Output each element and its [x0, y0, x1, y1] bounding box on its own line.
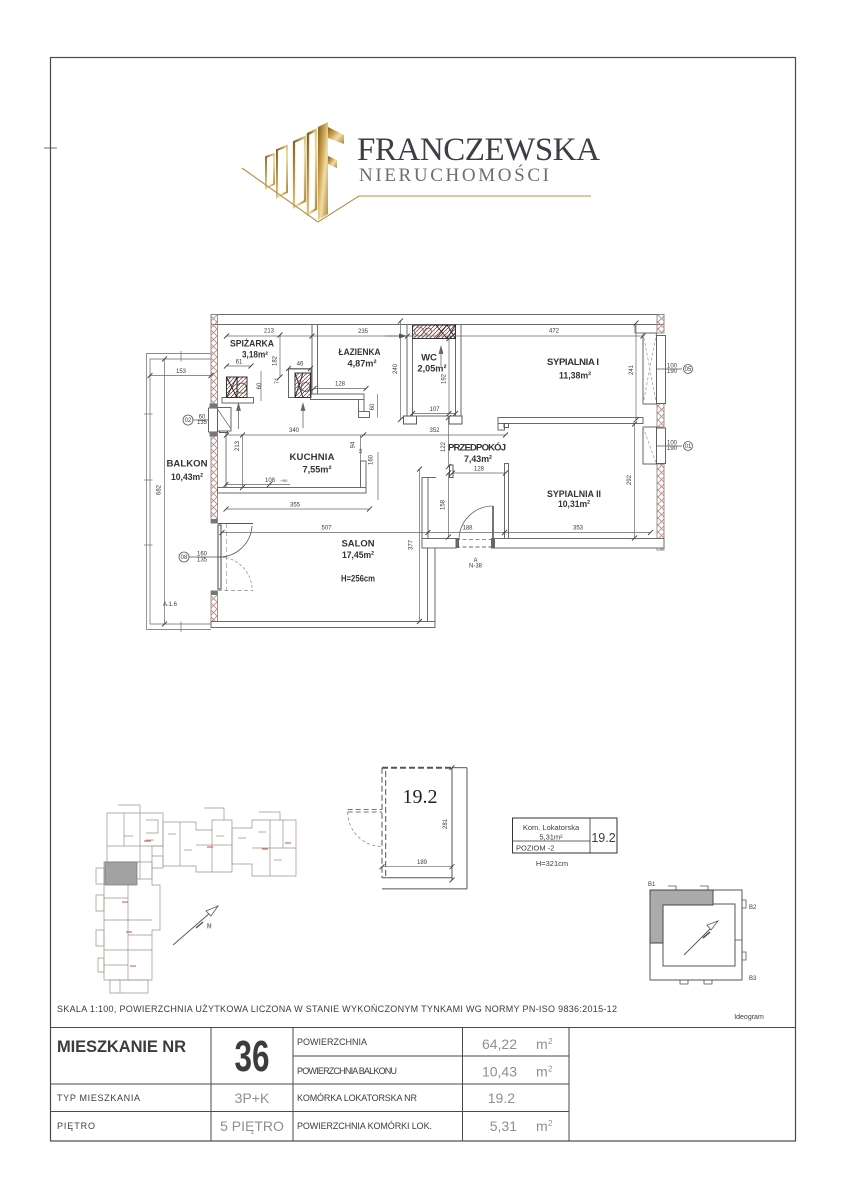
svg-text:NIERUCHOMOŚCI: NIERUCHOMOŚCI [359, 164, 549, 186]
svg-text:2: 2 [548, 1119, 553, 1128]
svg-text:281: 281 [443, 818, 449, 829]
svg-text:POZIOM -2: POZIOM -2 [516, 844, 554, 853]
svg-text:POWIERZCHNIA BALKONU: POWIERZCHNIA BALKONU [297, 1066, 397, 1076]
svg-text:10,43m²: 10,43m² [171, 472, 203, 483]
svg-text:m: m [536, 1064, 548, 1080]
svg-text:A.1.6: A.1.6 [163, 602, 178, 608]
svg-text:SALON: SALON [342, 539, 375, 550]
svg-text:PIĘTRO: PIĘTRO [57, 1121, 95, 1131]
svg-text:107: 107 [429, 407, 440, 413]
svg-text:5,31: 5,31 [490, 1118, 517, 1134]
svg-text:135: 135 [197, 420, 208, 426]
svg-text:122: 122 [441, 441, 447, 452]
svg-text:213: 213 [264, 329, 275, 335]
svg-text:160: 160 [369, 454, 375, 465]
svg-text:353: 353 [573, 526, 584, 532]
svg-text:182: 182 [273, 355, 279, 366]
svg-text:292: 292 [627, 474, 633, 485]
svg-text:ŁAZIENKA: ŁAZIENKA [339, 347, 381, 358]
svg-text:4,87m²: 4,87m² [348, 359, 377, 370]
svg-text:m: m [536, 1036, 548, 1052]
svg-text:377: 377 [409, 539, 415, 550]
svg-text:2: 2 [548, 1065, 553, 1074]
svg-text:153: 153 [176, 369, 187, 375]
svg-text:2: 2 [548, 1037, 553, 1046]
svg-text:B1: B1 [648, 882, 656, 888]
svg-text:507: 507 [321, 526, 332, 532]
svg-text:N-38: N-38 [469, 564, 483, 570]
svg-text:⌐50: ⌐50 [281, 478, 289, 483]
svg-text:11,38m²: 11,38m² [559, 371, 591, 382]
svg-text:19.2: 19.2 [591, 831, 615, 845]
svg-text:128: 128 [474, 467, 485, 473]
svg-text:135: 135 [197, 558, 208, 564]
svg-text:188: 188 [462, 526, 473, 532]
svg-text:KUCHNIA: KUCHNIA [290, 452, 335, 463]
svg-text:H=256cm: H=256cm [341, 574, 375, 584]
svg-text:5,31m²: 5,31m² [539, 833, 563, 842]
svg-text:46: 46 [297, 362, 304, 368]
svg-text:Kom. Lokatorska: Kom. Lokatorska [523, 823, 580, 832]
svg-text:472: 472 [549, 329, 560, 335]
svg-text:m: m [536, 1118, 548, 1134]
svg-text:36: 36 [235, 1032, 270, 1081]
svg-text:POWIERZCHNIA: POWIERZCHNIA [297, 1037, 367, 1047]
svg-text:241: 241 [629, 364, 635, 375]
svg-text:108: 108 [265, 478, 276, 484]
svg-text:BALKON: BALKON [167, 459, 208, 470]
svg-text:94: 94 [351, 441, 357, 448]
svg-text:235: 235 [358, 329, 369, 335]
svg-text:N: N [207, 924, 211, 930]
svg-text:H=321cm: H=321cm [536, 859, 568, 868]
svg-text:Ideogram: Ideogram [734, 1014, 764, 1021]
svg-text:128: 128 [335, 382, 346, 388]
svg-text:213: 213 [235, 440, 241, 451]
svg-text:5 PIĘTRO: 5 PIĘTRO [220, 1118, 284, 1134]
svg-text:192: 192 [442, 373, 448, 384]
svg-text:7,55m²: 7,55m² [303, 465, 332, 476]
svg-text:SKALA 1:100, POWIERZCHNIA UŻYT: SKALA 1:100, POWIERZCHNIA UŻYTKOWA LICZO… [57, 1004, 617, 1014]
svg-text:MIESZKANIE NR: MIESZKANIE NR [57, 1038, 186, 1056]
svg-text:2,05m²: 2,05m² [418, 364, 447, 375]
svg-text:SYPIALNIA I: SYPIALNIA I [547, 357, 599, 368]
svg-text:60: 60 [370, 403, 376, 410]
svg-text:190: 190 [667, 369, 678, 375]
svg-text:TYP MIESZKANIA: TYP MIESZKANIA [57, 1093, 140, 1103]
svg-text:PRZEDPOKÓJ: PRZEDPOKÓJ [448, 442, 506, 454]
svg-text:17,45m²: 17,45m² [342, 550, 374, 561]
svg-text:352: 352 [429, 428, 440, 434]
svg-text:60: 60 [257, 382, 263, 389]
svg-text:158: 158 [441, 499, 447, 510]
svg-text:19.2: 19.2 [403, 786, 438, 808]
svg-text:7,43m²: 7,43m² [464, 454, 492, 465]
svg-text:19.2: 19.2 [488, 1090, 515, 1106]
svg-text:02: 02 [185, 418, 192, 424]
svg-text:64,22: 64,22 [482, 1036, 517, 1052]
svg-text:189: 189 [417, 860, 428, 866]
svg-text:FRANCZEWSKA: FRANCZEWSKA [357, 132, 600, 168]
svg-text:74: 74 [275, 378, 281, 384]
svg-text:340: 340 [289, 428, 300, 434]
svg-text:B2: B2 [749, 905, 757, 911]
svg-text:355: 355 [290, 503, 301, 509]
svg-text:08: 08 [181, 555, 188, 561]
svg-text:61: 61 [236, 360, 243, 366]
svg-text:3,18m²: 3,18m² [242, 350, 268, 360]
svg-text:B3: B3 [749, 976, 757, 982]
svg-text:POWIERZCHNIA KOMÓRKI LOK.: POWIERZCHNIA KOMÓRKI LOK. [297, 1121, 432, 1131]
svg-text:01: 01 [685, 444, 692, 450]
svg-text:KOMÓRKA LOKATORSKA NR: KOMÓRKA LOKATORSKA NR [297, 1093, 418, 1103]
svg-text:240: 240 [393, 363, 399, 374]
svg-text:WC: WC [421, 353, 437, 364]
svg-text:10,31m²: 10,31m² [558, 499, 590, 510]
svg-text:10,43: 10,43 [482, 1064, 517, 1080]
svg-text:3P+K: 3P+K [235, 1090, 270, 1106]
svg-text:682: 682 [157, 484, 163, 495]
svg-text:SPIŻARKA: SPIŻARKA [230, 339, 274, 349]
svg-text:05: 05 [685, 367, 692, 373]
svg-text:190: 190 [667, 446, 678, 452]
svg-text:15: 15 [358, 448, 363, 454]
